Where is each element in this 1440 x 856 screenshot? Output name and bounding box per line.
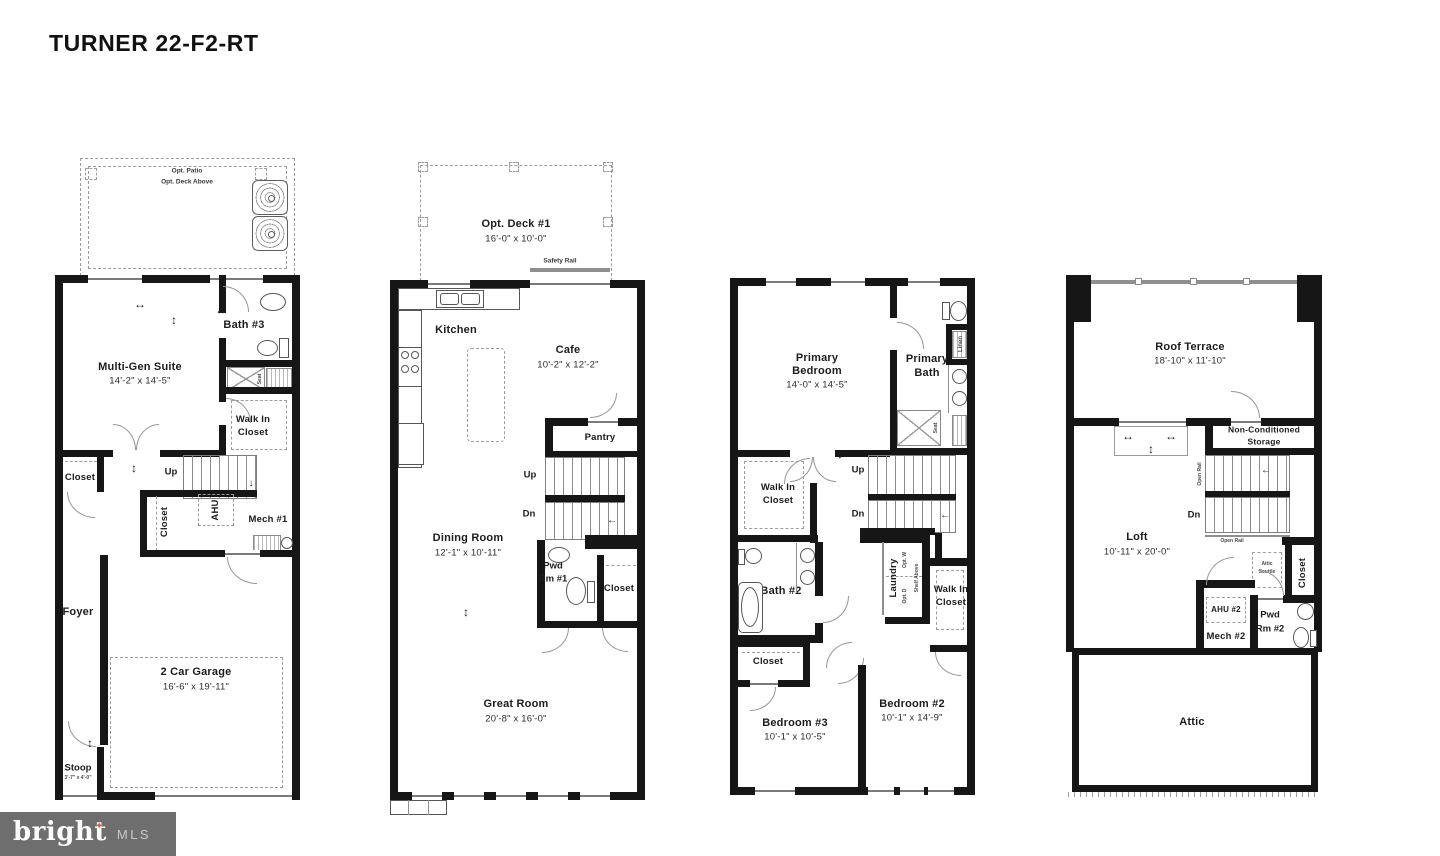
cafe-dims: 10'-2" x 12'-2" xyxy=(537,360,598,371)
door-arc xyxy=(67,492,95,518)
linen-label: Linen xyxy=(958,336,964,352)
door-opening xyxy=(1258,595,1283,603)
door-arc xyxy=(935,652,961,676)
wall xyxy=(390,280,398,800)
ahu2-label: AHU #2 xyxy=(1211,605,1241,615)
toilet-tank-icon xyxy=(738,549,745,565)
pwd-rm1-label: Rm #1 xyxy=(539,574,568,585)
vanity-counter-line xyxy=(796,543,797,593)
burner-icon xyxy=(401,351,409,359)
sliding-door xyxy=(530,280,610,288)
garage-door xyxy=(155,792,292,800)
walkin-closet-label: Walk In xyxy=(761,482,795,494)
wall xyxy=(967,278,975,795)
door-arc xyxy=(897,322,924,349)
multigen-suite-dims: 14'-2" x 14'-5" xyxy=(109,376,170,387)
wall xyxy=(860,535,930,543)
wall xyxy=(1282,537,1322,545)
primary-bedroom-dims: 14'-0" x 14'-5" xyxy=(786,380,847,391)
wall xyxy=(100,555,108,745)
stoop-opening xyxy=(63,792,97,800)
patio-post xyxy=(85,168,97,180)
staircase-up xyxy=(1205,455,1290,493)
wall xyxy=(810,483,817,543)
swing-arrow-icon: ↕ xyxy=(837,448,843,460)
dining-room-label: Dining Room xyxy=(433,532,504,546)
sink-icon xyxy=(260,293,286,311)
door-opening xyxy=(225,550,260,557)
mech2-label: Mech #2 xyxy=(1207,631,1246,643)
primary-bath-label: Primary xyxy=(906,353,948,367)
garage-dims: 16'-6" x 19'-11" xyxy=(163,682,229,693)
wall xyxy=(890,448,967,455)
toilet-tank-icon xyxy=(279,338,289,358)
opt-patio-label: Opt. Patio xyxy=(172,168,203,175)
window xyxy=(538,792,568,800)
stairs-up-label: Up xyxy=(524,470,537,481)
sink-icon xyxy=(952,369,967,384)
opt-deck-above-label: Opt. Deck Above xyxy=(161,179,213,186)
hvac-condenser-icon xyxy=(252,180,288,215)
multigen-suite-label: Multi-Gen Suite xyxy=(98,361,182,375)
deck-post xyxy=(603,217,613,227)
door-arc xyxy=(813,457,836,482)
wall xyxy=(890,350,897,455)
window xyxy=(428,280,470,288)
stairs-dn-label: Dn xyxy=(852,509,865,520)
sink-icon xyxy=(952,391,967,406)
bathtub-basin-icon xyxy=(741,587,759,627)
stair-arrow-icon: ← xyxy=(607,516,617,526)
wall xyxy=(738,535,818,542)
cafe-label: Cafe xyxy=(556,344,581,358)
sliding-door xyxy=(1119,418,1186,426)
window xyxy=(755,787,795,795)
window xyxy=(831,278,865,286)
stair-arrow-icon: ↓ xyxy=(249,479,254,489)
swing-arrow-icon: ↔ xyxy=(1122,430,1134,442)
wall xyxy=(815,542,823,596)
wall xyxy=(219,425,226,455)
swing-arrow-icon: ↔ xyxy=(215,304,227,316)
deck-post xyxy=(418,162,428,172)
closet-rod-line xyxy=(65,461,97,462)
pantry-label: Pantry xyxy=(585,432,616,444)
garage-label: 2 Car Garage xyxy=(161,666,232,680)
wall xyxy=(219,394,226,402)
primary-bath-label: Bath xyxy=(914,367,939,381)
pwd-rm2-label: Rm #2 xyxy=(1256,624,1285,635)
door-arc xyxy=(113,424,136,450)
loft-label: Loft xyxy=(1126,531,1148,545)
sink-basin-icon xyxy=(440,293,459,305)
door-arc xyxy=(227,557,257,584)
opt-washer-label: Opt. W xyxy=(902,552,908,568)
stoop-dims: 3'-7" x 4'-0" xyxy=(64,775,91,781)
island-outline xyxy=(467,348,505,442)
door-arc xyxy=(1231,391,1260,418)
wall xyxy=(1205,448,1322,455)
wall xyxy=(946,359,967,365)
patio-post xyxy=(255,168,267,180)
walkin-closet-label: Closet xyxy=(763,495,793,507)
sink-icon xyxy=(800,570,815,585)
closet-rod-line xyxy=(606,565,636,566)
bay-window-mullion xyxy=(428,800,429,815)
stairs-dn-label: Dn xyxy=(1188,510,1201,521)
stair-arrow-icon: ← xyxy=(1261,466,1271,476)
dining-room-dims: 12'-1" x 10'-11" xyxy=(435,548,501,559)
door-arc xyxy=(602,628,628,652)
closet-label: Closet xyxy=(753,656,783,668)
floor-plan-4: Roof Terrace 18'-10" x 11'-10" ↔ ↔ ↕ Non… xyxy=(1066,275,1322,800)
stairs-dn-label: Dn xyxy=(523,509,536,520)
wall xyxy=(885,617,930,624)
wall xyxy=(219,360,292,367)
wall xyxy=(537,621,597,628)
wall xyxy=(860,528,935,535)
foyer-label: Foyer xyxy=(63,606,94,620)
wall xyxy=(930,645,967,652)
hvac-condenser-icon xyxy=(252,216,288,251)
bifold-door xyxy=(882,542,884,615)
stoop-label: Stoop xyxy=(65,763,92,774)
vanity-counter-line xyxy=(948,365,949,413)
logo-mls-text: MLS xyxy=(117,827,151,842)
wall xyxy=(55,275,63,800)
open-rail xyxy=(1205,535,1290,537)
swing-arrow-icon: ↕ xyxy=(171,314,177,326)
walkin-closet-label: Closet xyxy=(936,597,966,609)
wall xyxy=(97,455,104,492)
wall xyxy=(890,286,897,318)
wall xyxy=(597,621,645,628)
stairs-up-label: Up xyxy=(165,467,178,478)
toilet-icon xyxy=(1293,627,1309,648)
rail-post xyxy=(1243,278,1250,285)
door-opening xyxy=(588,418,618,426)
safety-rail xyxy=(530,268,610,272)
toilet-icon xyxy=(257,340,278,356)
loft-dims: 10'-11" x 20'-0" xyxy=(1104,547,1170,558)
bay-window xyxy=(390,800,447,815)
wall xyxy=(930,558,967,566)
swing-arrow-icon: ↕ xyxy=(131,462,137,474)
walkin-closet-label: Walk In xyxy=(934,584,968,596)
shower-seat-label: Seat xyxy=(933,423,939,434)
window xyxy=(412,792,442,800)
kitchen-label: Kitchen xyxy=(435,324,477,338)
opt-deck-label: Opt. Deck #1 xyxy=(481,218,550,232)
closet-rod-line xyxy=(156,496,157,551)
shelf-above-label: Shelf Above xyxy=(914,564,920,593)
safety-rail-label: Safety Rail xyxy=(543,258,576,265)
door-arc xyxy=(542,628,569,653)
wall xyxy=(1196,580,1204,650)
wall xyxy=(585,535,637,549)
window xyxy=(496,792,526,800)
window xyxy=(580,792,610,800)
door-arc xyxy=(823,596,849,623)
ahu-label: AHU xyxy=(210,499,222,520)
shelf-icon xyxy=(952,415,967,446)
wall xyxy=(1285,545,1292,600)
water-heater-icon xyxy=(253,535,281,551)
primary-bedroom-label: Bedroom xyxy=(792,365,842,379)
swing-arrow-icon: ↔ xyxy=(1165,430,1177,442)
window xyxy=(928,787,954,795)
deck-post xyxy=(603,162,613,172)
toilet-icon xyxy=(745,548,762,564)
swing-arrow-icon: ↕ xyxy=(463,606,469,618)
rail-post xyxy=(1190,278,1197,285)
bath3-label: Bath #3 xyxy=(223,319,264,333)
floor-plan-3: Primary Bedroom 14'-0" x 14'-5" Primary … xyxy=(730,278,975,795)
roof-edge-hatch xyxy=(1068,792,1320,797)
burner-icon xyxy=(411,351,419,359)
opt-deck-dims: 16'-0" x 10'-0" xyxy=(485,234,546,245)
walkin-closet-label: Walk In xyxy=(236,414,270,426)
window xyxy=(766,278,796,286)
logo-star-icon: ✦ xyxy=(95,821,103,832)
wall-pier xyxy=(1297,275,1322,322)
floor-plan-2: Opt. Deck #1 16'-0" x 10'-0" Safety Rail… xyxy=(390,165,645,815)
door-arc xyxy=(1206,557,1234,585)
closet-rod-line xyxy=(742,652,800,653)
wall xyxy=(922,540,930,620)
wall xyxy=(803,640,810,685)
door-arc xyxy=(590,393,617,418)
wall xyxy=(63,450,113,457)
closet-label: Closet xyxy=(604,583,634,595)
window xyxy=(454,792,484,800)
wall xyxy=(140,550,292,557)
toilet-tank-icon xyxy=(587,581,595,603)
wall xyxy=(738,450,790,457)
mech1-label: Mech #1 xyxy=(249,514,288,526)
swing-arrow-icon: ↕ xyxy=(1148,443,1154,455)
bedroom3-dims: 10'-1" x 10'-5" xyxy=(764,732,825,743)
brightmls-logo: bright ✦ MLS xyxy=(0,812,176,856)
wall xyxy=(637,280,645,800)
closet-label: Closet xyxy=(1297,558,1309,588)
bedroom2-label: Bedroom #2 xyxy=(879,698,945,712)
floor-plan-1: Opt. Patio Opt. Deck Above Bath #3 Seat … xyxy=(55,158,300,800)
staircase-up xyxy=(868,455,956,495)
toilet-tank-icon xyxy=(1310,630,1317,647)
floorplan-sheet: TURNER 22-F2-RT Opt. Patio Opt. Deck Abo… xyxy=(0,0,1440,856)
opt-dryer-label: Opt. D xyxy=(902,589,908,604)
wall xyxy=(858,665,866,787)
window xyxy=(210,275,263,283)
sink-basin-icon xyxy=(461,293,480,305)
logo-brand-text: bright xyxy=(13,817,107,847)
storage-label: Storage xyxy=(1247,437,1280,448)
sink-icon xyxy=(1297,603,1314,620)
attic-scuttle-label: Attic xyxy=(1261,561,1272,567)
closet-label: Closet xyxy=(159,507,171,537)
pwd-rm2-label: Pwd xyxy=(1260,610,1280,621)
toilet-icon xyxy=(566,577,586,605)
plan-title: TURNER 22-F2-RT xyxy=(49,30,259,57)
pwd-rm1-label: Pwd xyxy=(543,561,563,572)
great-room-label: Great Room xyxy=(484,698,549,712)
deck-post xyxy=(509,162,519,172)
window xyxy=(868,787,894,795)
laundry-label: Laundry xyxy=(888,559,900,598)
great-room-dims: 20'-8" x 16'-0" xyxy=(485,714,546,725)
wall xyxy=(738,640,810,647)
wall xyxy=(292,275,300,800)
wall xyxy=(730,278,738,795)
walkin-closet-label: Closet xyxy=(238,427,268,439)
deck-post xyxy=(418,217,428,227)
staircase-up xyxy=(545,457,625,497)
burner-icon xyxy=(411,365,419,373)
bay-window-mullion xyxy=(408,800,409,815)
door-opening xyxy=(750,680,778,687)
bedroom2-dims: 10'-1" x 14'-9" xyxy=(881,713,942,724)
wall xyxy=(1066,322,1074,652)
burner-icon xyxy=(401,365,409,373)
door-arc xyxy=(750,687,776,711)
open-rail-label: Open Rail xyxy=(1220,538,1243,544)
wall xyxy=(97,747,104,792)
primary-bedroom-label: Primary xyxy=(796,352,838,366)
wall xyxy=(219,387,292,394)
stair-wall xyxy=(545,495,625,502)
stair-arrow-icon: ← xyxy=(940,511,950,521)
shower-seat-label: Seat xyxy=(257,374,263,385)
toilet-tank-icon xyxy=(942,302,950,320)
roof-terrace-label: Roof Terrace xyxy=(1155,341,1224,355)
sink-icon xyxy=(800,548,815,563)
water-heater-icon xyxy=(281,537,293,549)
window xyxy=(908,278,940,286)
swing-arrow-icon: ↔ xyxy=(134,298,146,310)
toilet-icon xyxy=(950,301,967,321)
swing-arrow-icon: ↕ xyxy=(87,737,93,749)
staircase-down xyxy=(1205,497,1290,533)
refrigerator-icon xyxy=(398,423,424,465)
window xyxy=(900,787,924,795)
attic-label: Attic xyxy=(1179,716,1204,730)
closet-label: Closet xyxy=(65,472,95,484)
wall xyxy=(140,490,147,555)
wall-pier xyxy=(1066,275,1091,322)
open-rail-label: Open Rail xyxy=(1197,462,1203,485)
storage-label: Non-Conditioned xyxy=(1228,425,1300,436)
bedroom3-label: Bedroom #3 xyxy=(762,717,828,731)
rail-post xyxy=(1135,278,1142,285)
stairs-up-label: Up xyxy=(852,465,865,476)
door-arc xyxy=(136,424,159,450)
roof-terrace-dims: 18'-10" x 11'-10" xyxy=(1154,356,1226,367)
window xyxy=(88,275,142,283)
